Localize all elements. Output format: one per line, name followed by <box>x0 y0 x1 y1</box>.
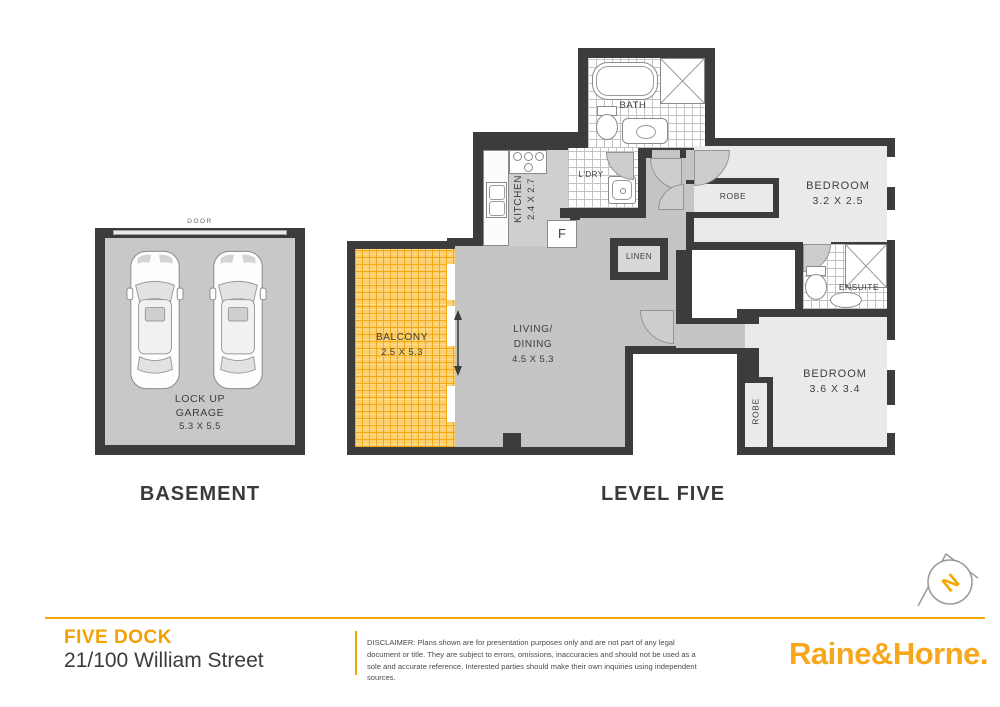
robe1-wall <box>694 212 779 218</box>
balcony-label: BALCONY 2.5 X 5.3 <box>352 330 452 360</box>
robe2-wall <box>767 377 773 453</box>
sliding-door-arrows-icon <box>452 310 464 376</box>
ensuite-label: ENSUITE <box>826 282 892 293</box>
garage-label-line2: GARAGE <box>120 406 280 420</box>
living-wall-notch <box>503 433 521 447</box>
footer-divider <box>355 631 357 675</box>
bathtub-icon <box>592 62 658 100</box>
bedroom1-dims: 3.2 X 2.5 <box>778 194 898 209</box>
window <box>887 210 895 240</box>
sliding-door-gap <box>447 386 455 422</box>
garage-label-line1: LOCK UP <box>120 392 280 406</box>
address: 21/100 William Street <box>64 649 264 673</box>
sink-icon <box>830 292 862 308</box>
kitchen-dims: 2.4 X 2.7 <box>525 159 538 239</box>
car-icon <box>209 247 267 393</box>
kitchen-name: KITCHEN <box>512 159 525 239</box>
kitchen-label: KITCHEN 2.4 X 2.7 <box>512 159 546 239</box>
bedroom2-name: BEDROOM <box>775 367 895 382</box>
garage-door-label: DOOR <box>180 218 220 226</box>
connector-floor <box>676 324 745 348</box>
suburb-title: FIVE DOCK <box>64 627 172 649</box>
disclaimer-text: DISCLAIMER: Plans shown are for presenta… <box>367 637 704 684</box>
vanity-icon <box>622 118 668 144</box>
bath-label: BATH <box>603 100 663 112</box>
bedroom1-door-gap <box>686 150 694 180</box>
linen-label: LINEN <box>616 252 662 262</box>
robe1-label: ROBE <box>703 191 763 202</box>
robe1-door-gap <box>686 184 694 212</box>
living-name2: DINING <box>473 337 593 352</box>
laundry-label: L'DRY <box>566 170 616 180</box>
sliding-door-gap <box>447 264 455 300</box>
floorplan-canvas: DOOR LOCK UP GARAGE 5.3 X 5.5 BASEMENT <box>0 0 1000 707</box>
bedroom1-label: BEDROOM 3.2 X 2.5 <box>778 179 898 209</box>
sink-icon <box>486 182 507 218</box>
laundry-wall <box>638 148 646 210</box>
laundry-wall <box>560 208 646 218</box>
connector-door-gap <box>745 324 759 348</box>
bedroom1-name: BEDROOM <box>778 179 898 194</box>
bedroom2-label: BEDROOM 3.6 X 3.4 <box>775 367 895 397</box>
basement-title: BASEMENT <box>95 481 305 507</box>
living-dims: 4.5 X 5.3 <box>473 352 593 367</box>
window <box>887 340 895 370</box>
robe2-label: ROBE <box>750 392 761 432</box>
bedroom2-dims: 3.6 X 3.4 <box>775 382 895 397</box>
garage-door <box>113 230 287 235</box>
ensuite-door-gap <box>803 236 831 244</box>
garage-dims: 5.3 X 5.5 <box>120 420 280 434</box>
living-label: LIVING/ DINING 4.5 X 5.3 <box>473 322 593 367</box>
shower-icon <box>660 58 705 104</box>
fridge-label: F <box>549 226 575 243</box>
balcony-dims: 2.5 X 5.3 <box>352 345 452 360</box>
toilet-icon <box>805 274 827 300</box>
window <box>887 405 895 433</box>
compass-icon: N <box>908 548 988 614</box>
garage-label: LOCK UP GARAGE 5.3 X 5.5 <box>120 392 280 434</box>
level-five-title: LEVEL FIVE <box>558 481 768 507</box>
brand-logo: Raine&Horne. <box>748 636 988 672</box>
footer-rule <box>45 617 985 619</box>
living-name1: LIVING/ <box>473 322 593 337</box>
car-icon <box>126 247 184 393</box>
balcony-name: BALCONY <box>352 330 452 345</box>
toilet-icon <box>596 114 618 140</box>
